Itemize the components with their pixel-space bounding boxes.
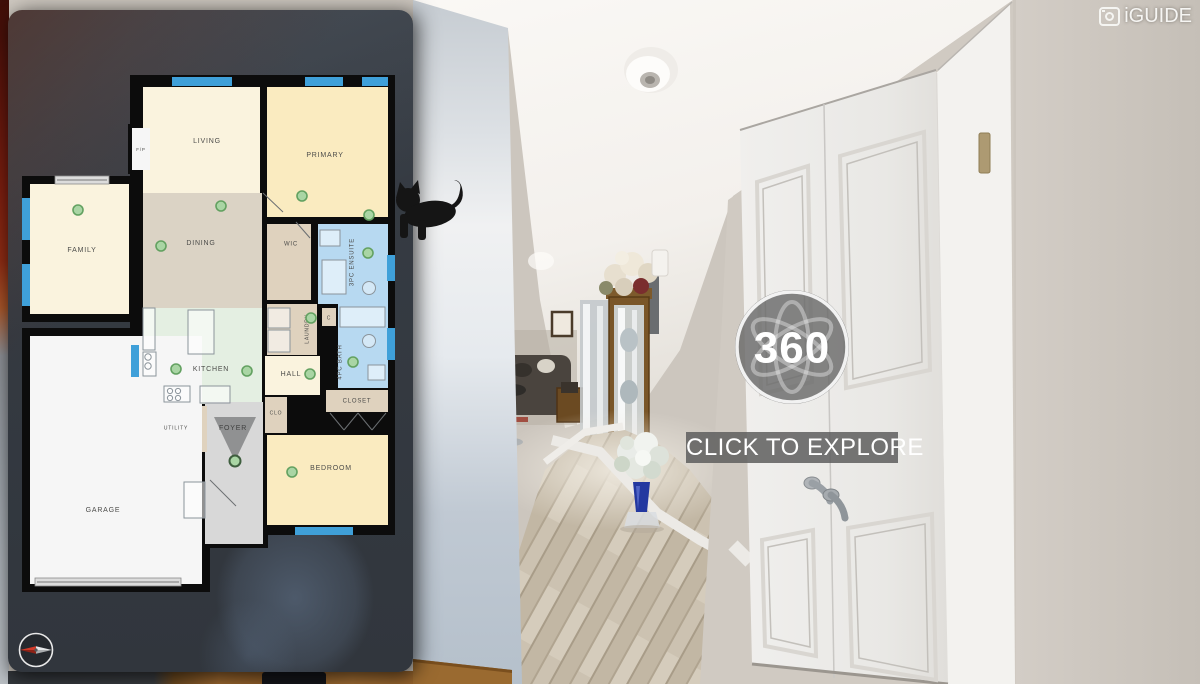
pano-location-dot[interactable] — [364, 210, 374, 220]
room-label: CLOSET — [343, 399, 372, 405]
compass-pivot — [34, 648, 37, 651]
badge-label: 360 — [754, 324, 830, 373]
plan-window — [295, 527, 353, 535]
room-label: UTILITY — [164, 425, 188, 431]
room-label: F/P — [136, 147, 145, 152]
360-badge-button[interactable]: 360 — [727, 282, 857, 412]
room-label: WIC — [284, 242, 298, 248]
plan-fixture — [188, 310, 214, 354]
plan-window — [22, 198, 30, 240]
plan-fixture — [143, 308, 155, 350]
plan-fixture — [184, 482, 205, 518]
pano-location-dot[interactable] — [348, 357, 358, 367]
pano-location-dot[interactable] — [287, 467, 297, 477]
plan-fixture — [200, 386, 230, 403]
room-label: DINING — [186, 240, 215, 247]
pano-location-dot[interactable] — [297, 191, 307, 201]
plan-fixture — [268, 330, 290, 352]
pano-location-dot[interactable] — [73, 205, 83, 215]
plan-fixture — [145, 363, 151, 369]
plan-window — [131, 345, 139, 377]
plan-fixture — [368, 365, 385, 380]
pano-location-dot[interactable] — [156, 241, 166, 251]
room-label: CLO — [270, 410, 283, 416]
plan-fixture — [167, 388, 172, 393]
plan-window — [362, 77, 388, 86]
room-label: C — [327, 315, 331, 321]
plan-fixture — [175, 388, 180, 393]
current-pano-dot[interactable] — [230, 456, 241, 467]
cta-label: CLICK TO EXPLORE — [686, 434, 924, 461]
plan-window — [387, 328, 395, 360]
room-label: HALL — [281, 371, 302, 378]
room-bedroom[interactable] — [267, 435, 388, 525]
plan-window — [22, 264, 30, 306]
plan-fixture — [320, 230, 340, 246]
plan-fixture — [340, 307, 385, 327]
iguide-logo: iGUIDE — [1099, 5, 1192, 28]
room-label: LIVING — [193, 138, 221, 145]
plan-fixture — [145, 354, 151, 360]
plan-window — [172, 77, 232, 86]
pano-location-dot[interactable] — [216, 201, 226, 211]
plan-fixture — [167, 395, 172, 400]
room-label: 4PC BATH — [338, 344, 344, 379]
pano-location-dot[interactable] — [363, 248, 373, 258]
pano-location-dot[interactable] — [306, 313, 316, 323]
room-label: 3PC ENSUITE — [350, 238, 356, 286]
camera-square-icon — [1099, 7, 1120, 26]
plan-window — [387, 255, 395, 281]
room-label: GARAGE — [86, 507, 121, 514]
iguide-viewer: LIVINGPRIMARYDININGFAMILYWIC3PC ENSUITEK… — [0, 0, 1200, 684]
compass-icon[interactable] — [17, 631, 55, 669]
plan-fixture — [268, 308, 290, 328]
room-label: FAMILY — [67, 247, 96, 254]
plan-fixture — [175, 395, 180, 400]
plan-window — [305, 77, 343, 86]
pano-location-dot[interactable] — [171, 364, 181, 374]
logo-text: iGUIDE — [1124, 5, 1192, 28]
plan-fixture — [363, 335, 376, 348]
floorplan-minimap[interactable]: LIVINGPRIMARYDININGFAMILYWIC3PC ENSUITEK… — [0, 0, 1200, 684]
plan-fixture — [322, 260, 346, 294]
room-wic[interactable] — [267, 224, 311, 300]
room-label: BEDROOM — [310, 465, 352, 472]
room-label: KITCHEN — [193, 366, 229, 373]
pano-location-dot[interactable] — [242, 366, 252, 376]
plan-fixture — [363, 282, 376, 295]
room-label: PRIMARY — [306, 152, 343, 159]
pano-location-dot[interactable] — [305, 369, 315, 379]
click-to-explore-button[interactable]: CLICK TO EXPLORE — [686, 432, 898, 463]
